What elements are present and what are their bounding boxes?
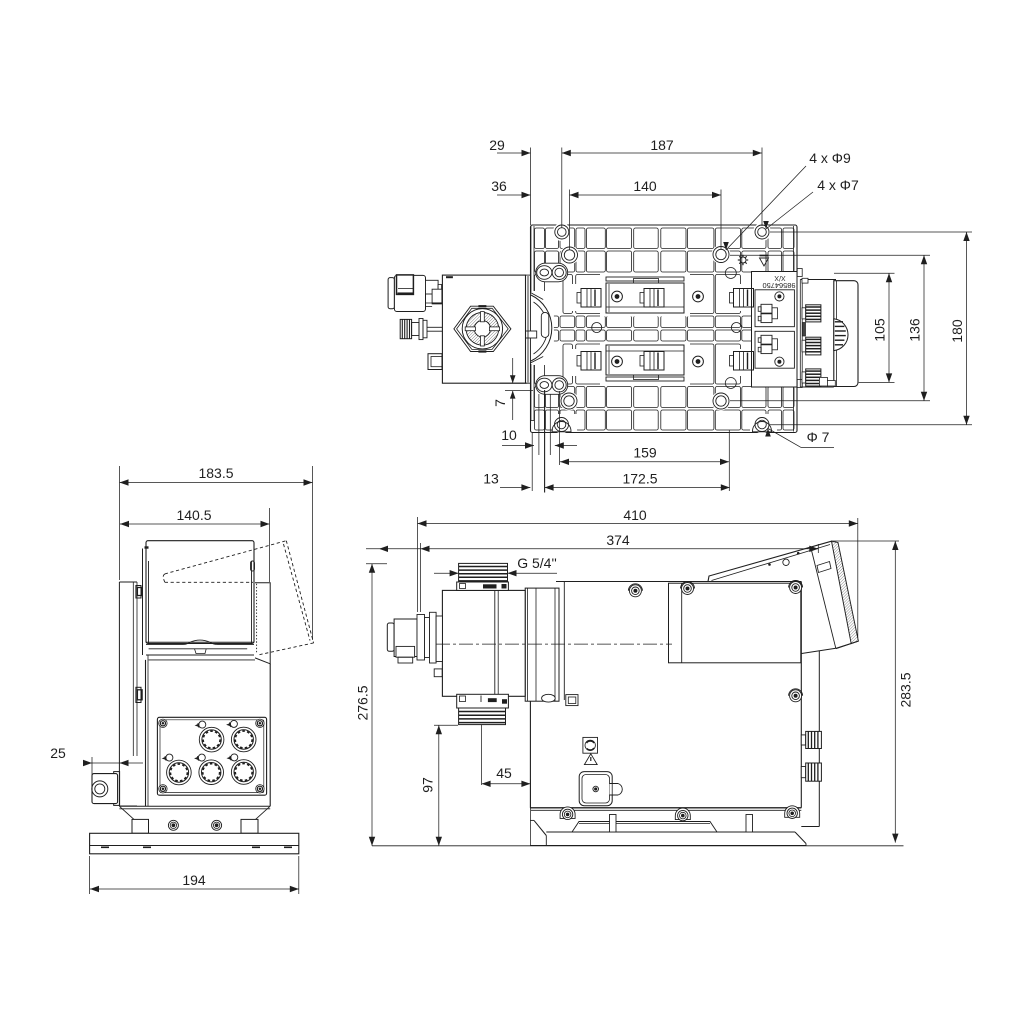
svg-text:172.5: 172.5 (622, 471, 657, 487)
svg-text:410: 410 (623, 507, 647, 523)
svg-text:98564750: 98564750 (763, 281, 796, 290)
svg-text:136: 136 (907, 318, 923, 342)
svg-text:276.5: 276.5 (355, 685, 371, 720)
svg-text:G 5/4'': G 5/4'' (517, 555, 557, 571)
svg-text:283.5: 283.5 (898, 672, 914, 707)
svg-text:45: 45 (496, 765, 512, 781)
svg-text:105: 105 (872, 318, 888, 342)
svg-text:159: 159 (633, 445, 657, 461)
svg-text:13: 13 (483, 471, 499, 487)
svg-text:X/X: X/X (774, 274, 786, 281)
svg-text:187: 187 (650, 137, 674, 153)
svg-text:194: 194 (182, 872, 206, 888)
svg-text:10: 10 (501, 427, 517, 443)
svg-text:140: 140 (633, 178, 657, 194)
svg-text:374: 374 (606, 532, 630, 548)
svg-text:25: 25 (50, 745, 66, 761)
svg-text:7: 7 (492, 399, 508, 407)
svg-text:180: 180 (949, 319, 965, 343)
svg-text:29: 29 (489, 137, 505, 153)
svg-text:97: 97 (420, 777, 436, 793)
svg-text:4 x Φ7: 4 x Φ7 (817, 177, 859, 193)
svg-text:4 x Φ9: 4 x Φ9 (809, 150, 851, 166)
svg-text:Φ 7: Φ 7 (807, 429, 830, 445)
svg-text:183.5: 183.5 (198, 465, 233, 481)
svg-text:36: 36 (491, 178, 507, 194)
svg-text:140.5: 140.5 (176, 507, 211, 523)
